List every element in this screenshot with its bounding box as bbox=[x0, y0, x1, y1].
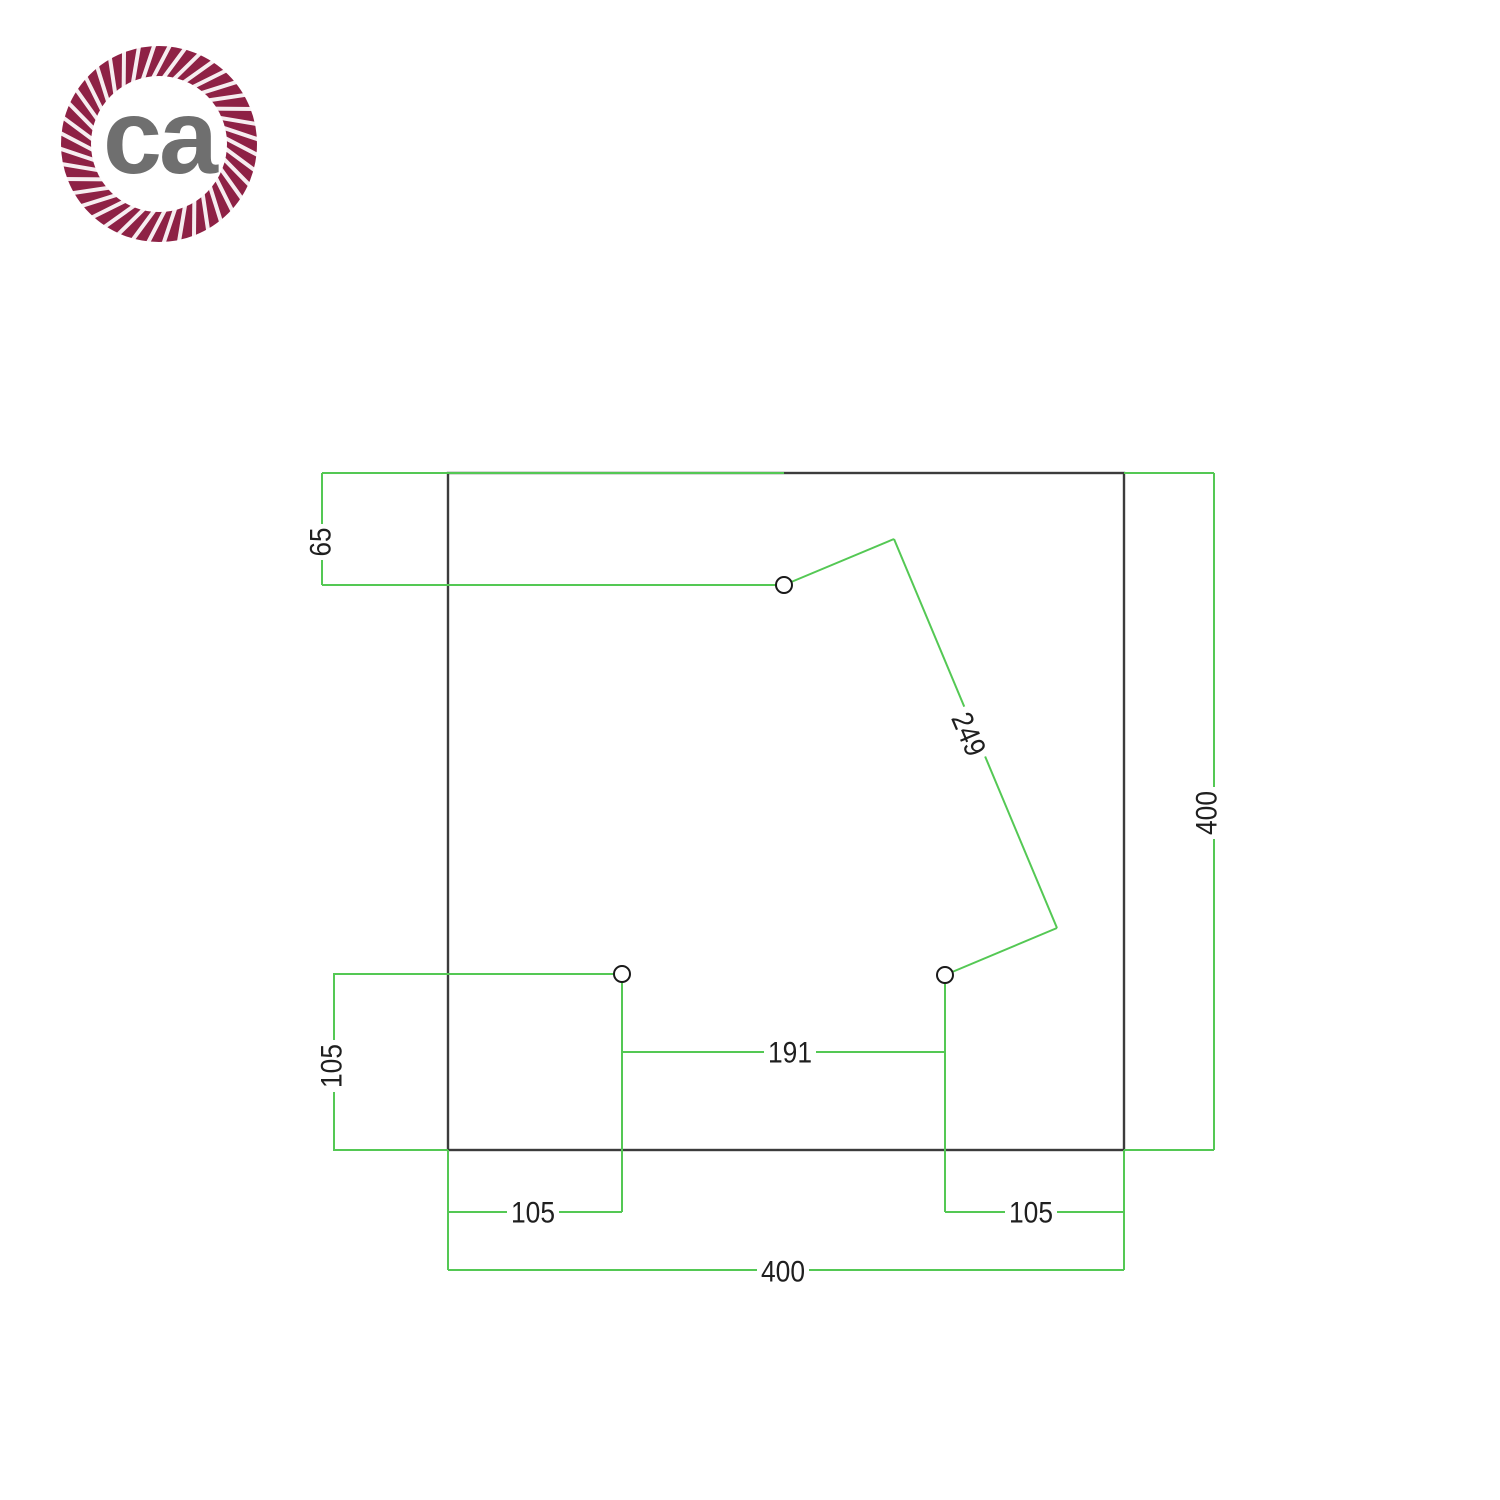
drill-holes bbox=[614, 577, 953, 983]
label-text: 105 bbox=[316, 1044, 349, 1088]
dimension-labels: 65 105 400 249 191 105 105 400 bbox=[305, 524, 1224, 1289]
hole-top bbox=[776, 577, 792, 593]
ext-line-249-end bbox=[945, 928, 1057, 975]
page: ca bbox=[0, 0, 1500, 1500]
label-text: 105 bbox=[511, 1197, 555, 1230]
dim-label-105-left: 105 bbox=[316, 1040, 349, 1092]
logo-letters: ca bbox=[103, 78, 219, 196]
hole-bottom-right bbox=[937, 967, 953, 983]
label-text: 400 bbox=[761, 1256, 805, 1289]
ext-line-249-start bbox=[784, 539, 894, 585]
dim-label-105-bottom-right: 105 bbox=[1005, 1197, 1057, 1230]
hole-bottom-left bbox=[614, 966, 630, 982]
brand-logo: ca bbox=[56, 41, 262, 247]
dim-label-400-bottom: 400 bbox=[757, 1256, 809, 1289]
label-text: 400 bbox=[1191, 791, 1224, 835]
label-text: 191 bbox=[768, 1037, 812, 1070]
dim-label-191: 191 bbox=[764, 1037, 816, 1070]
dim-label-400-right: 400 bbox=[1191, 787, 1224, 839]
template-drawing: ca bbox=[0, 0, 1500, 1500]
label-text: 105 bbox=[1009, 1197, 1053, 1230]
label-text: 65 bbox=[305, 528, 338, 557]
dim-label-105-bottom-left: 105 bbox=[507, 1197, 559, 1230]
dim-label-65: 65 bbox=[305, 524, 338, 560]
